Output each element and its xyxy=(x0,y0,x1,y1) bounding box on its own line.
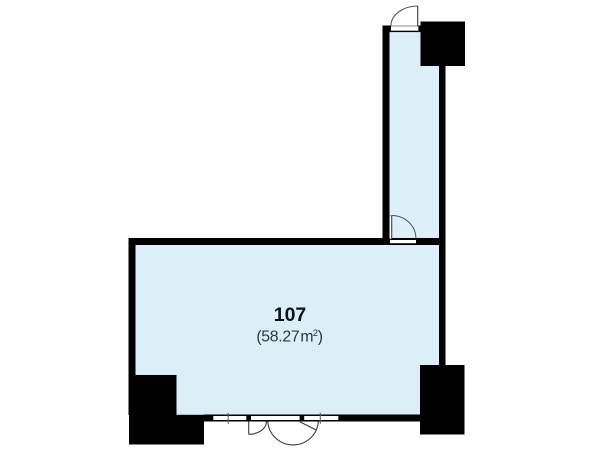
svg-text:(58.27m2): (58.27m2) xyxy=(256,328,322,346)
svg-text:107: 107 xyxy=(274,304,307,326)
